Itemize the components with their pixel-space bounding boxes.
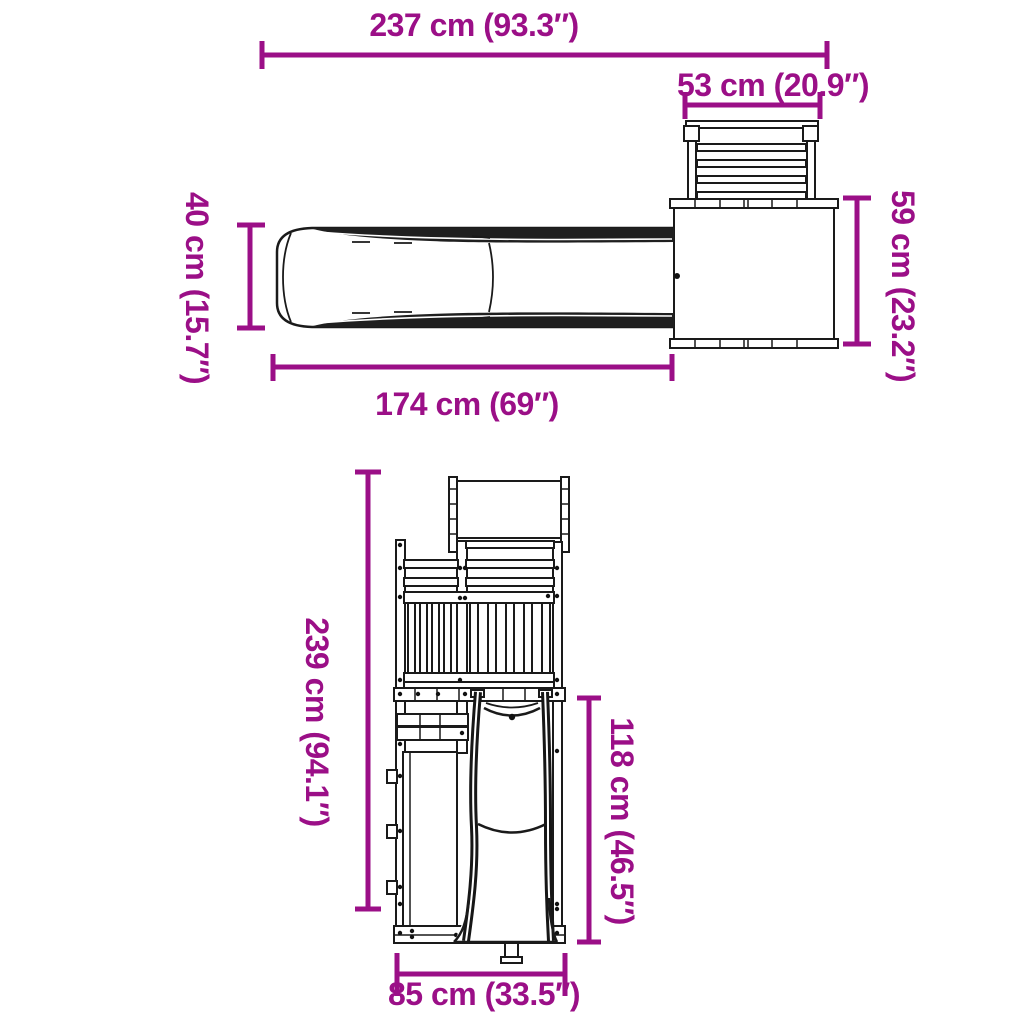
dim-label-slide-width: 40 cm (15.7″) (181, 192, 213, 384)
dimension-diagram-page: 237 cm (93.3″) 53 cm (20.9″) 40 cm (15.7… (0, 0, 1024, 1024)
dim-line-platform-height (577, 698, 601, 942)
platform-top-view (670, 199, 838, 348)
dim-label-slide-length: 174 cm (69″) (375, 388, 559, 420)
slide-front-view (454, 690, 557, 963)
dim-line-overall-height (355, 472, 381, 909)
dim-label-overall-height: 239 cm (94.1″) (301, 617, 333, 826)
dimension-drawing-canvas (0, 0, 1024, 1024)
dim-label-base-width: 85 cm (33.5″) (388, 978, 580, 1010)
slide-top-view (277, 228, 674, 327)
dim-line-overall-width (262, 41, 827, 69)
dim-line-slide-width (237, 225, 265, 328)
dim-line-slide-length (273, 354, 672, 381)
dim-line-platform-depth (843, 198, 871, 344)
dim-label-climbing-wall-width: 53 cm (20.9″) (677, 69, 869, 101)
dim-label-platform-depth: 59 cm (23.2″) (887, 190, 919, 382)
front-view-drawing (355, 472, 601, 996)
climbing-wall-top-view (684, 121, 818, 201)
dim-label-overall-width: 237 cm (93.3″) (369, 9, 578, 41)
dim-label-platform-height: 118 cm (46.5″) (606, 717, 638, 925)
